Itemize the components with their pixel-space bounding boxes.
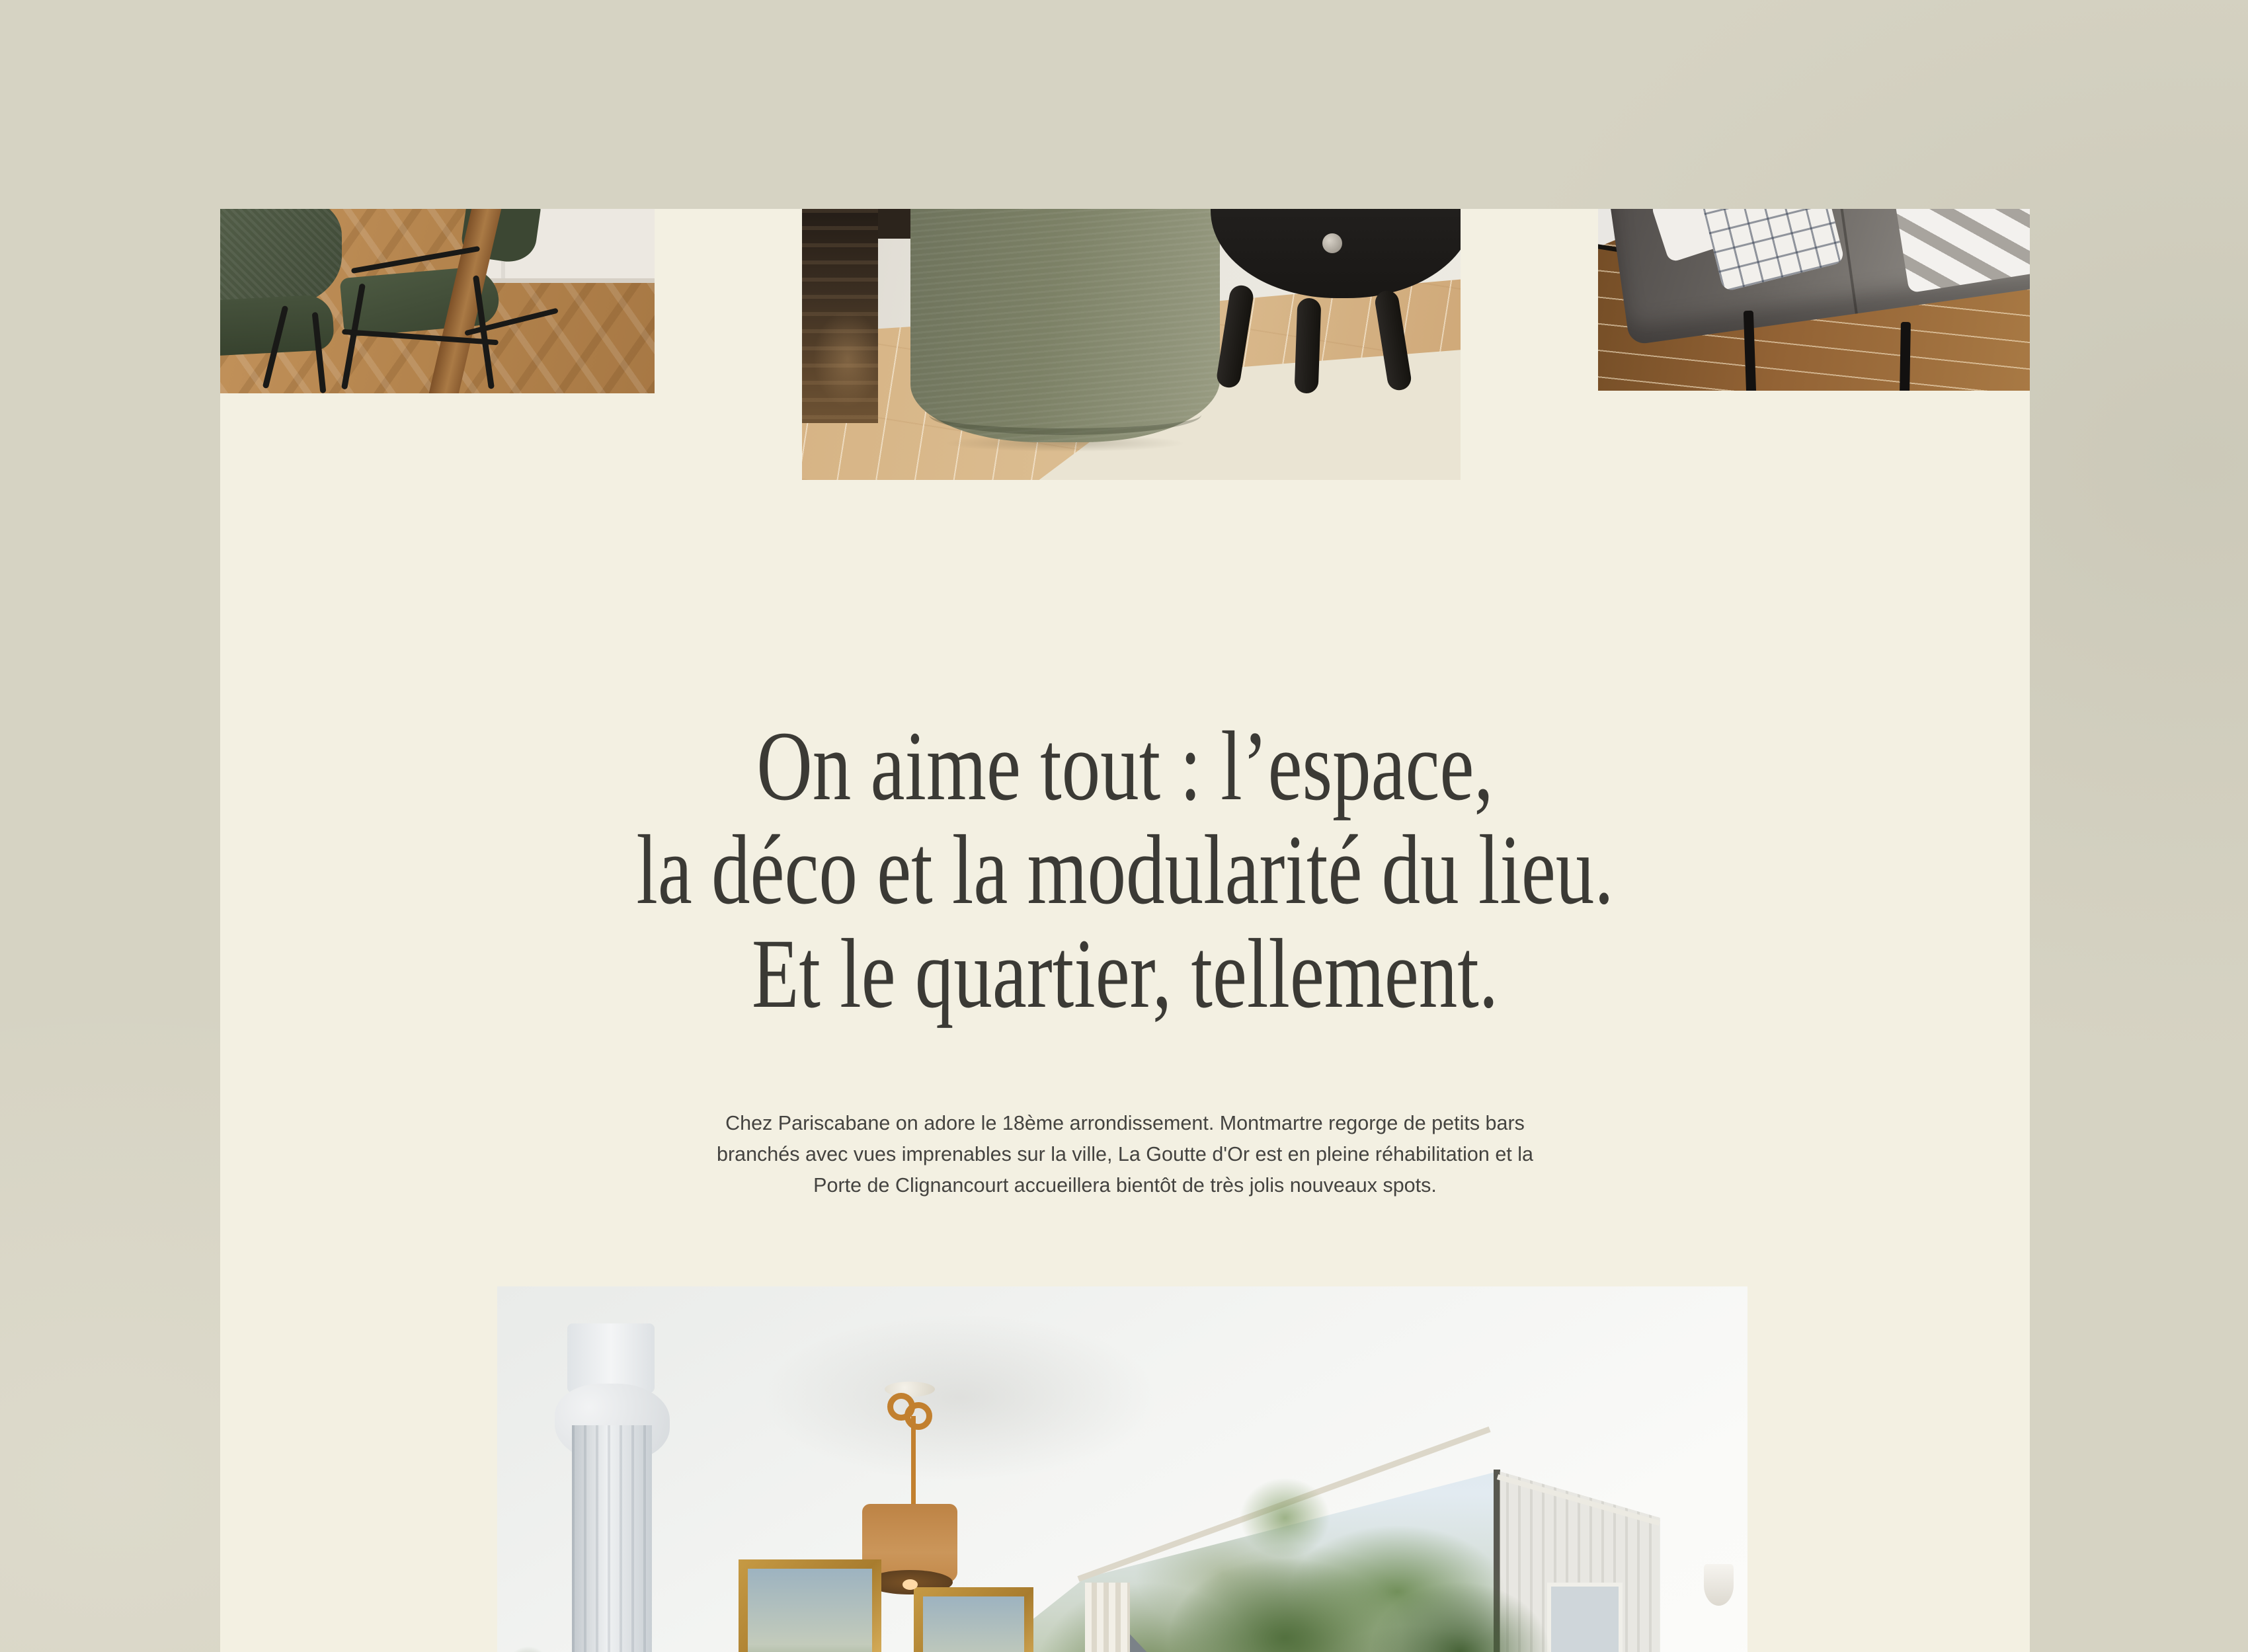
decorative-column (572, 1425, 652, 1652)
gallery-photo-dining-chairs (220, 209, 655, 393)
daybed-leg (1900, 321, 1911, 391)
stool-screw-detail (1322, 233, 1342, 253)
heading-line: Et le quartier, tellement. (419, 922, 1831, 1026)
heading-line: la déco et la modularité du lieu. (419, 818, 1831, 922)
section-heading: On aime tout : l’espace, la déco et la m… (220, 715, 2030, 1026)
painting-canvas (923, 1596, 1025, 1652)
ceiling-rose (885, 1382, 935, 1397)
gallery-photo-daybed (1598, 209, 2030, 391)
lamp-cord (911, 1416, 916, 1507)
paragraph-line: branchés avec vues imprenables sur la vi… (220, 1139, 2030, 1170)
paragraph-line: Porte de Clignancourt accueillera bientô… (220, 1170, 2030, 1201)
curtain (1085, 1583, 1130, 1652)
rustic-table-leg (802, 209, 878, 423)
plant-leaves (497, 1629, 572, 1652)
painting-canvas (748, 1569, 872, 1652)
gallery-photo-pouf-stool (802, 209, 1461, 480)
page-background: On aime tout : l’espace, la déco et la m… (0, 0, 2248, 1652)
stool-leg (1295, 298, 1322, 394)
ceiling-shadow (698, 1286, 1223, 1509)
column-top (567, 1323, 655, 1393)
indoor-plant (1223, 1462, 1347, 1573)
gallery-photo-living-room (497, 1286, 1747, 1652)
indoor-plant (1335, 1555, 1585, 1652)
wall-lamp (1704, 1564, 1734, 1606)
gilded-painting (914, 1587, 1034, 1652)
content-sheet: On aime tout : l’espace, la déco et la m… (220, 209, 2030, 1652)
gilded-painting (739, 1559, 881, 1652)
section-paragraph: Chez Pariscabane on adore le 18ème arron… (220, 1108, 2030, 1201)
paragraph-line: Chez Pariscabane on adore le 18ème arron… (220, 1108, 2030, 1139)
heading-line: On aime tout : l’espace, (419, 715, 1831, 818)
canvas-pouf (910, 209, 1220, 442)
